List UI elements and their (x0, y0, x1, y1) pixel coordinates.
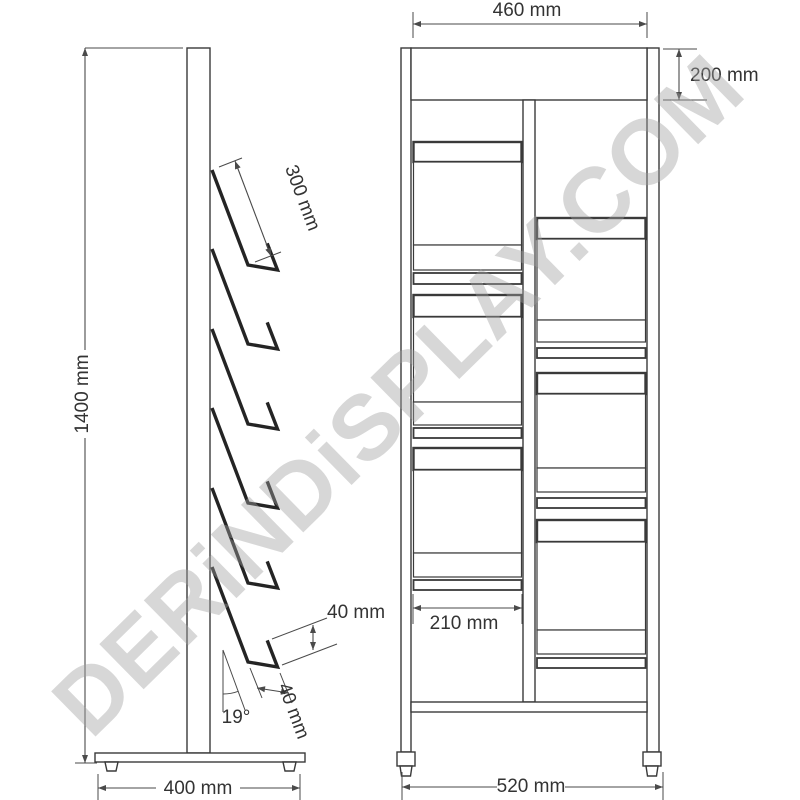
front-post-left (401, 48, 411, 752)
side-pocket-profile-6 (212, 567, 278, 667)
side-pocket-profile-2 (212, 249, 278, 349)
side-pocket-profile-3 (212, 329, 278, 429)
dim-label-pocket-depth: 40 mm (273, 680, 313, 742)
dim-base-depth: 400 mm (98, 774, 300, 800)
dim-label-header-height: 200 mm (690, 65, 759, 86)
dim-label-pocket-length: 300 mm (280, 162, 324, 234)
dim-label-lip-height: 40 mm (327, 602, 385, 623)
dim-pocket-length: 300 mm (219, 158, 324, 262)
dim-lip-height: 40 mm (272, 602, 385, 665)
dim-label-tilt-angle: 19° (222, 707, 251, 728)
front-post-right (647, 48, 659, 752)
front-foot-collar-left (397, 752, 415, 766)
front-center-divider (523, 100, 535, 702)
dim-pocket-width: 210 mm (413, 594, 522, 634)
dim-total-width: 460 mm (413, 0, 647, 38)
technical-drawing-canvas: 1400 mm 300 mm 40 mm 40 mm 1 (0, 0, 800, 800)
side-pocket-profile-5 (212, 488, 278, 588)
dim-header-height: 200 mm (663, 49, 759, 100)
front-bottom-crossbar (411, 702, 647, 712)
front-header-panel (411, 48, 647, 100)
dim-tilt-angle: 19° (222, 650, 251, 728)
dim-label-total-height: 1400 mm (72, 354, 93, 433)
side-foot-left (105, 762, 118, 771)
front-foot-right (646, 766, 658, 776)
dim-label-base-depth: 400 mm (164, 778, 233, 799)
front-left-pocket-column (414, 142, 522, 590)
side-view: 1400 mm 300 mm 40 mm 40 mm 1 (72, 48, 385, 800)
dim-pocket-depth: 40 mm (250, 668, 313, 742)
side-base-plate (95, 753, 305, 762)
side-pocket-profile-4 (212, 408, 278, 508)
dim-label-total-width: 460 mm (493, 0, 562, 21)
side-foot-right (283, 762, 296, 771)
front-right-pocket-column (537, 218, 646, 668)
side-pocket-profile-1 (212, 170, 278, 270)
dim-label-pocket-width: 210 mm (430, 613, 499, 634)
side-upright-post (187, 48, 210, 753)
dim-label-base-width: 520 mm (497, 776, 566, 797)
drawing-svg: 1400 mm 300 mm 40 mm 40 mm 1 (0, 0, 800, 800)
front-view: 460 mm 200 mm 210 mm 520 mm (397, 0, 759, 800)
dim-total-height: 1400 mm (72, 48, 183, 763)
dim-base-width: 520 mm (402, 772, 663, 800)
front-foot-collar-right (643, 752, 661, 766)
